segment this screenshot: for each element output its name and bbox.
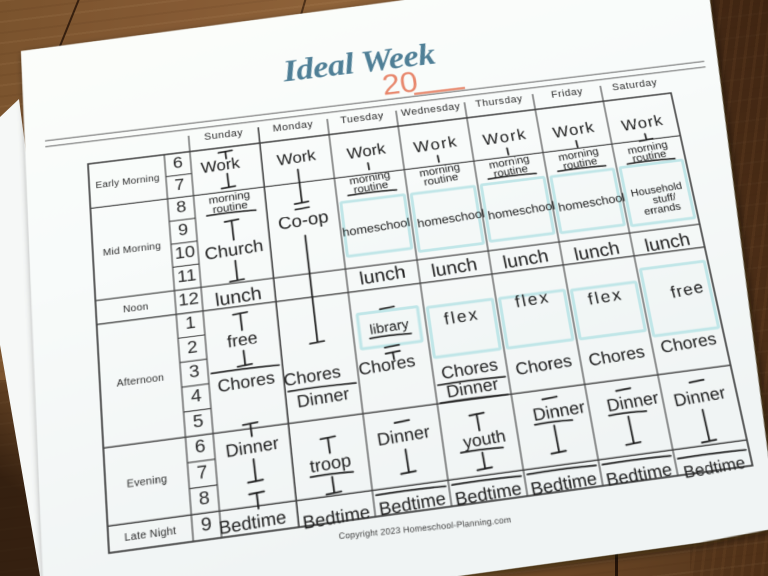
svg-text:6: 6: [172, 153, 183, 172]
svg-text:11: 11: [176, 265, 197, 286]
svg-text:7: 7: [174, 175, 185, 194]
svg-text:12: 12: [178, 288, 200, 310]
svg-text:1: 1: [185, 313, 197, 334]
svg-text:8: 8: [198, 487, 211, 510]
svg-text:6: 6: [194, 435, 206, 457]
svg-text:4: 4: [190, 385, 202, 407]
svg-text:9: 9: [200, 513, 213, 536]
svg-text:7: 7: [196, 461, 208, 484]
svg-text:9: 9: [177, 220, 189, 240]
svg-text:8: 8: [176, 197, 188, 217]
svg-text:10: 10: [174, 242, 196, 263]
svg-text:5: 5: [192, 410, 204, 432]
svg-text:3: 3: [188, 361, 200, 382]
svg-text:2: 2: [186, 337, 198, 358]
